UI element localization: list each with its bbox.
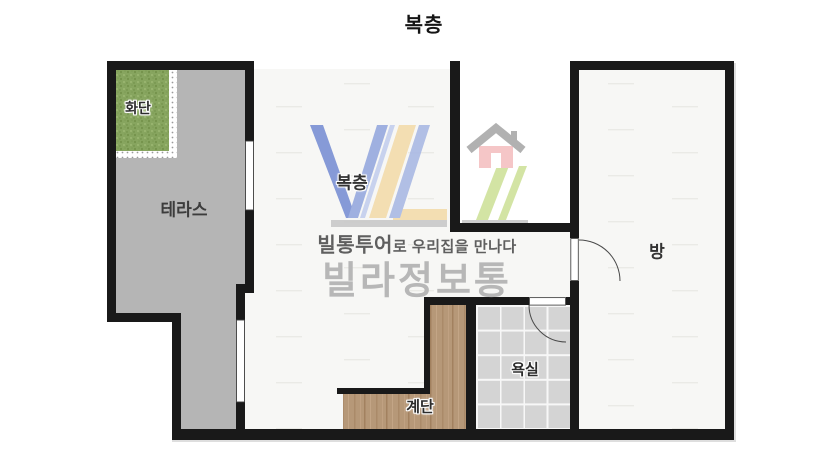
wall-room-right	[725, 61, 734, 440]
logo-base-bar-left	[331, 220, 447, 227]
label-loft: 복층	[336, 169, 367, 194]
flower-bed-border-right	[169, 69, 177, 158]
wall-bathroom-left	[466, 297, 476, 429]
wall-bottom	[172, 429, 734, 440]
plan-title: 복층	[405, 9, 444, 38]
wall-left-lower	[172, 313, 181, 440]
wall-stairs-top	[337, 388, 430, 394]
wall-divider-upper-a	[245, 69, 254, 141]
label-stairs: 계단	[406, 396, 434, 417]
wall-divider-lower-a	[236, 293, 245, 320]
floorplan-canvas: 빌통투어로 우리집을 만나다 빌라정보통 복층 화단 테라스 복층 방 욕실 계…	[0, 0, 840, 472]
label-terrace: 테라스	[161, 196, 208, 221]
house-icon	[469, 128, 523, 168]
flower-bed-border-bottom	[116, 151, 177, 158]
door-leaf-bathroom	[530, 298, 566, 306]
wall-bottom-shadow	[172, 440, 736, 442]
wall-loft-right	[450, 61, 460, 232]
wall-divider-lower-b	[236, 402, 245, 429]
window-terrace-upper	[246, 141, 254, 210]
watermark-brand: 빌라정보통	[322, 250, 512, 305]
label-bathroom: 욕실	[511, 359, 539, 380]
door-leaf-room	[571, 239, 579, 281]
wall-bathroom-top-b	[566, 297, 579, 305]
wall-room-left-upper	[570, 61, 579, 238]
terrace-floor-mid	[116, 284, 236, 314]
house-door	[491, 153, 501, 168]
wall-stairs-left	[424, 305, 430, 389]
label-room: 방	[649, 238, 665, 263]
wall-divider-jog	[236, 284, 254, 293]
wall-divider-upper-b	[245, 210, 254, 285]
wall-left-outer	[107, 61, 116, 322]
wall-room-top	[570, 61, 734, 70]
label-flower-bed: 화단	[125, 98, 151, 118]
window-terrace-lower	[237, 320, 245, 402]
terrace-floor-lower	[181, 313, 236, 430]
stairs-wood-horizontal	[343, 394, 466, 429]
wall-right-shadow	[734, 63, 736, 440]
wall-terrace-step	[107, 313, 181, 322]
wall-top-left-wing	[107, 61, 254, 70]
